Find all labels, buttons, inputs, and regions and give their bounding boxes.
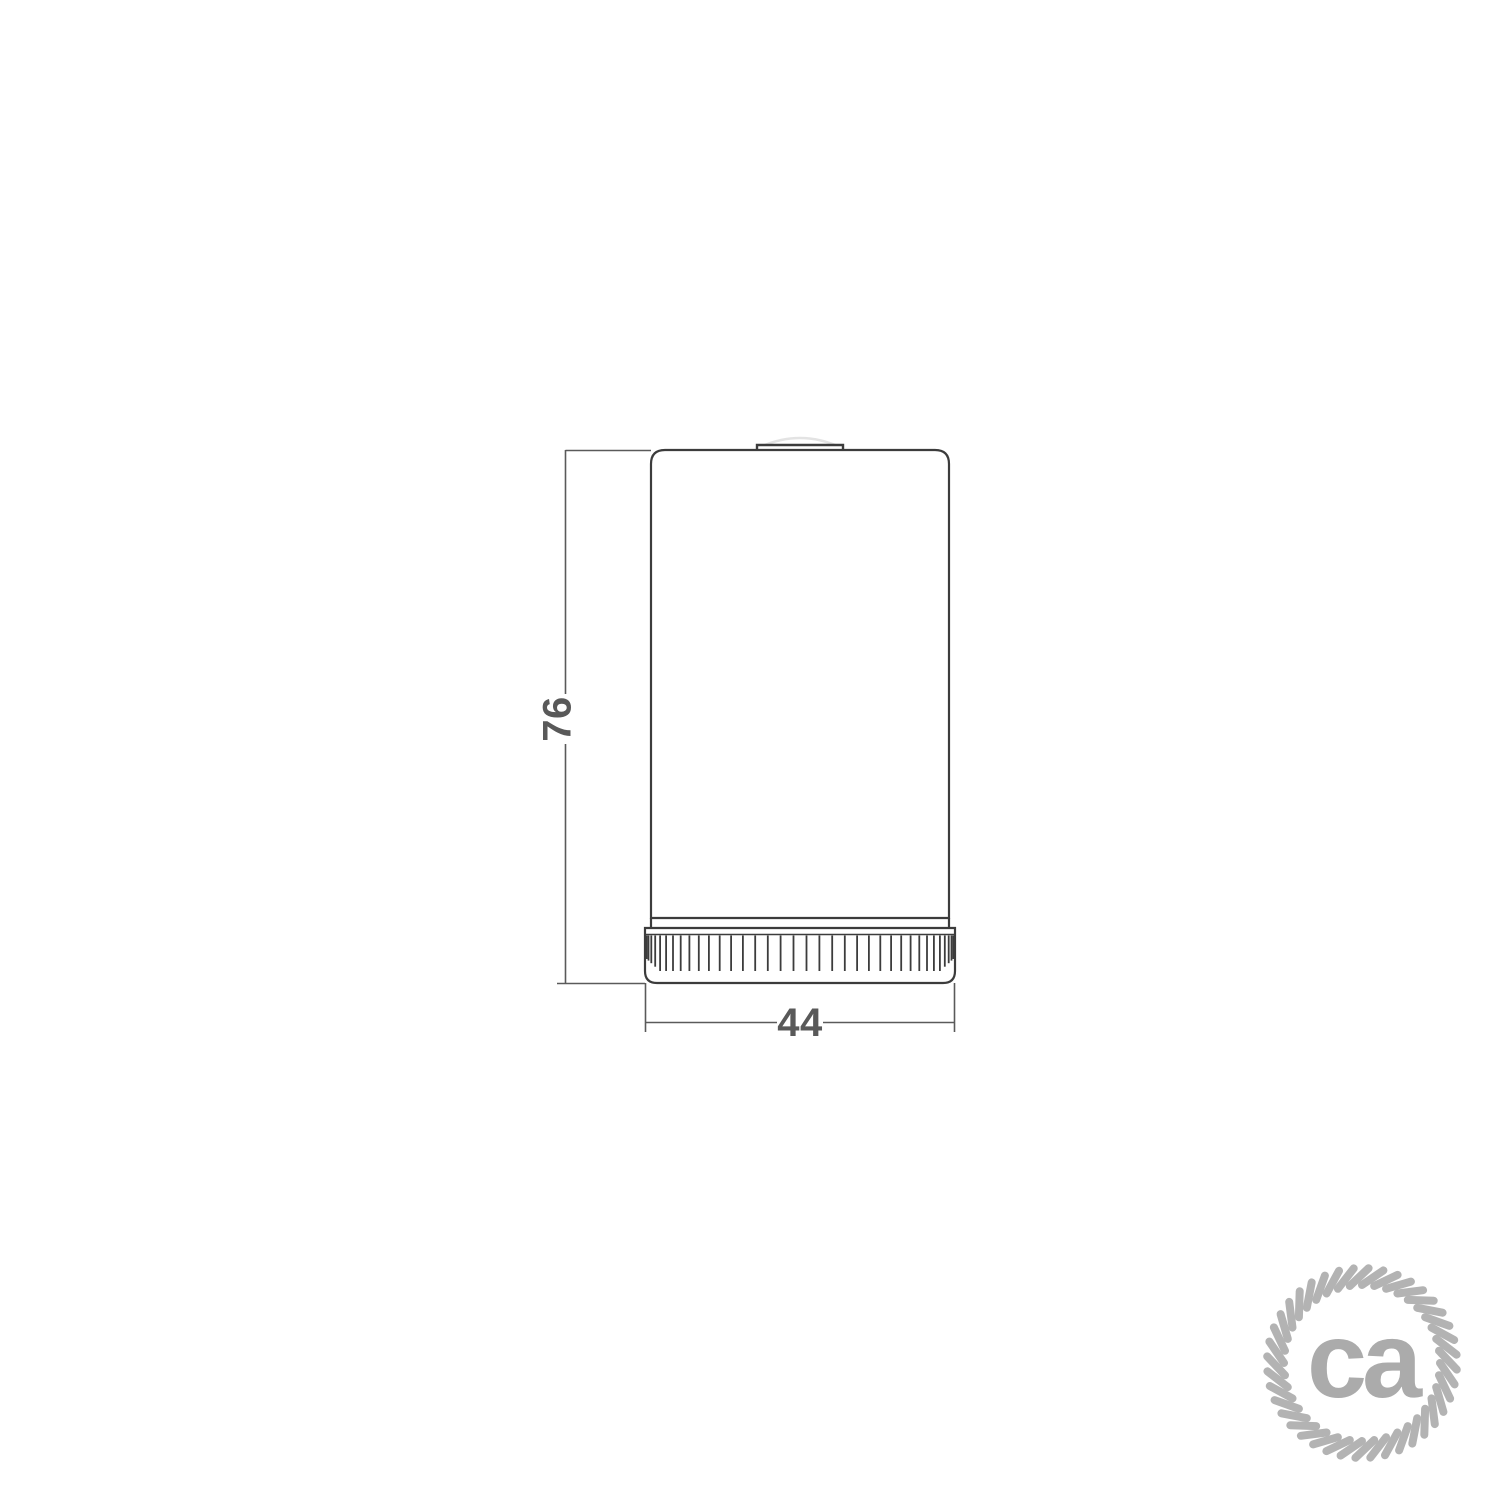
diameter-dimension: 44 (645, 983, 955, 1045)
rope-strand (1301, 1433, 1327, 1436)
rope-strand (1399, 1426, 1408, 1450)
rope-strand (1417, 1308, 1442, 1313)
diameter-dimension-label: 44 (777, 1001, 823, 1045)
height-dimension: 76 (536, 450, 652, 984)
rope-strand (1412, 1418, 1417, 1443)
rope-strand (1397, 1290, 1423, 1293)
rope-strand (1316, 1276, 1325, 1300)
technical-drawing-svg: 76 44 ca (0, 0, 1500, 1500)
rope-strand (1299, 1291, 1300, 1317)
drawing-canvas: 76 44 ca (0, 0, 1500, 1500)
knurled-ring-outline (645, 928, 955, 983)
knurled-ring (645, 928, 955, 983)
rope-strand (1275, 1400, 1299, 1409)
rope-strand (1424, 1409, 1425, 1435)
rope-strand (1281, 1413, 1306, 1418)
rope-strand (1425, 1317, 1449, 1326)
rope-strand (1289, 1302, 1292, 1328)
logo-text: ca (1307, 1299, 1423, 1420)
lamp-holder-body (651, 450, 949, 918)
rope-strand (1290, 1425, 1316, 1426)
height-dimension-label: 76 (536, 696, 580, 742)
creative-cables-logo: ca (1267, 1268, 1457, 1458)
lamp-holder-outline (645, 438, 955, 983)
rope-strand (1432, 1398, 1435, 1424)
